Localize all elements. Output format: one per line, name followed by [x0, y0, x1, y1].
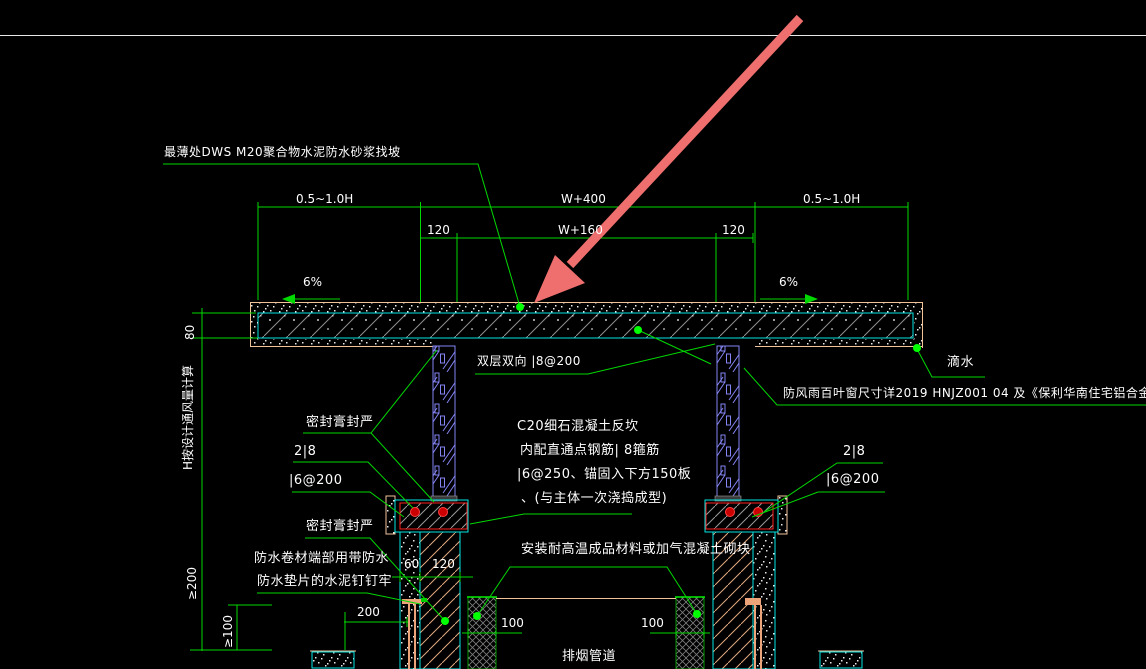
slope-label-left: 6%: [303, 276, 322, 290]
curb-note-line1: C20细石混凝土反坎: [517, 420, 639, 435]
sealant-note-top: 密封膏封严: [306, 416, 374, 431]
curb-note-line2: 内配直通点钢筋| 8箍筋: [520, 444, 660, 459]
membrane-note-line1: 防水卷材端部用带防水: [254, 552, 389, 567]
membrane-note-line2: 防水垫片的水泥钉钉牢: [257, 575, 392, 590]
sealant-note-bottom: 密封膏封严: [306, 520, 374, 535]
cad-viewport[interactable]: 最薄处DWS M20聚合物水泥防水砂浆找坡 0.5~1.0H W+400 0.5…: [0, 0, 1146, 669]
curb-note-line4: 、(与主体一次浇捣成型): [521, 492, 667, 507]
stirrup-label-left: |6@200: [289, 474, 342, 489]
dim-slab-thickness: 80: [184, 325, 198, 340]
roof-slab: [250, 302, 923, 348]
block-note: 安装耐高温成品材料或加气混凝土砌块: [521, 543, 751, 558]
height-note: H按设计通风量计算: [182, 365, 196, 470]
dim-second-mid: W+160: [558, 224, 603, 238]
dim-min-200: ≥200: [186, 567, 200, 600]
dim-top-mid: W+400: [561, 193, 606, 207]
left-sill-beam: [386, 496, 468, 534]
rebar-label-right: 2|8: [843, 445, 865, 460]
dim-duct-100-right: 100: [641, 617, 664, 631]
dim-min-100: ≥100: [222, 615, 236, 648]
red-markup-arrow: [534, 18, 800, 303]
dim-second-left: 120: [427, 224, 450, 238]
drawing-linework: [0, 0, 1146, 669]
dim-bottom-200: 200: [357, 606, 380, 620]
dim-wall-120: 120: [432, 558, 455, 572]
right-louver-column: [715, 346, 741, 501]
screed-note: 最薄处DWS M20聚合物水泥防水砂浆找坡: [164, 146, 401, 160]
right-sill-beam: [705, 496, 787, 534]
louver-note: 防风雨百叶窗尺寸详2019 HNJZ001 04 及《保利华南住宅铝合金门窗标: [783, 387, 1146, 401]
dim-wall-60: 60: [404, 558, 419, 572]
dim-second-right: 120: [722, 224, 745, 238]
rebar-label-left: 2|8: [294, 445, 316, 460]
dim-top-left: 0.5~1.0H: [296, 193, 353, 207]
stirrup-label-right: |6@200: [826, 473, 879, 488]
duct-label: 排烟管道: [562, 650, 616, 665]
slope-label-right: 6%: [779, 276, 798, 290]
drip-label: 滴水: [947, 356, 974, 371]
slab-rebar-note: 双层双向 |8@200: [477, 355, 581, 369]
curb-note-line3: |6@250、锚固入下方150板: [517, 468, 691, 483]
dim-duct-100-left: 100: [501, 617, 524, 631]
left-louver-column: [431, 346, 457, 501]
dim-top-right: 0.5~1.0H: [803, 193, 860, 207]
reference-dots: [441, 303, 921, 625]
